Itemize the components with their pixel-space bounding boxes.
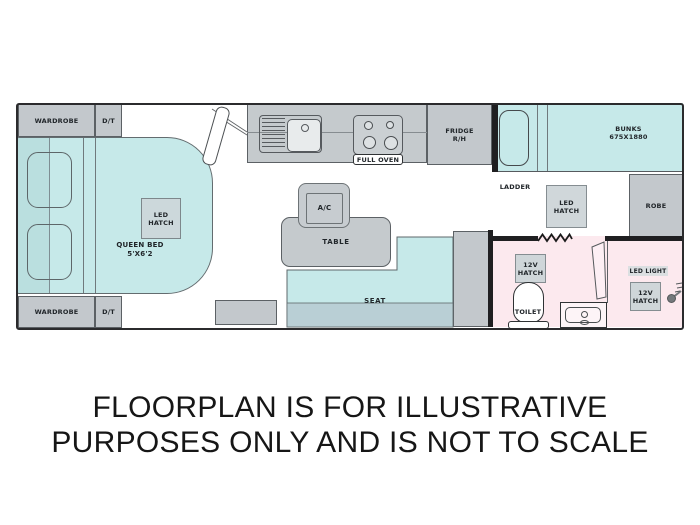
vanity <box>560 302 607 328</box>
twelve-v-hatch-shower: 12V HATCH <box>630 282 661 311</box>
led-light-tag: LED LIGHT <box>628 266 668 276</box>
disclaimer-line-1: FLOORPLAN IS FOR ILLUSTRATIVE <box>0 390 700 425</box>
shower-door-leaf-icon <box>592 242 606 299</box>
shower-head-icon <box>667 294 676 303</box>
bathroom-wall-top-left <box>492 236 538 241</box>
shower-tap-icon <box>675 283 683 292</box>
vanity-tap-icon <box>580 320 589 325</box>
vanity-drain-icon <box>581 311 588 318</box>
twelve-v-hatch-toilet: 12V HATCH <box>515 254 546 283</box>
vanity-sink <box>565 307 601 323</box>
shower-door-frame-line <box>607 241 608 303</box>
disclaimer-caption: FLOORPLAN IS FOR ILLUSTRATIVE PURPOSES O… <box>0 390 700 460</box>
floorplan: LED HATCH QUEEN BED 5'X6'2 WARDROBE D/T … <box>16 103 684 330</box>
bathroom-wall-left <box>488 230 493 327</box>
disclaimer-line-2: PURPOSES ONLY AND IS NOT TO SCALE <box>0 425 700 460</box>
toilet-label: TOILET <box>495 299 561 318</box>
toilet-base <box>508 321 549 329</box>
seat-label: SEAT <box>345 288 405 307</box>
bathroom-wall-top-right <box>605 236 683 241</box>
concertina-door-icon <box>538 235 572 242</box>
